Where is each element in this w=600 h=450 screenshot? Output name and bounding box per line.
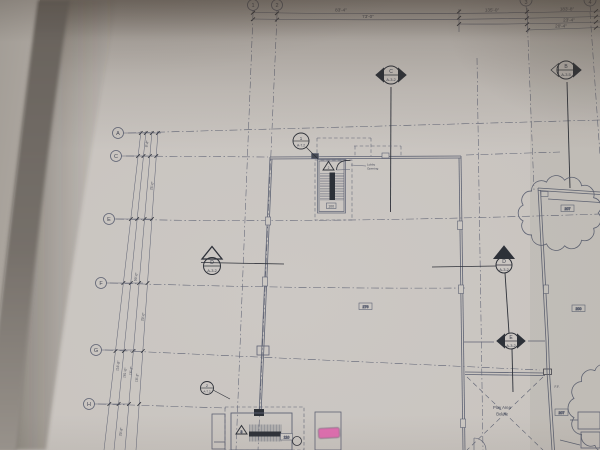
svg-text:D: D — [210, 260, 214, 266]
svg-text:A-3.2: A-3.2 — [499, 267, 509, 272]
svg-text:A-7.2: A-7.2 — [203, 390, 211, 394]
svg-text:D: D — [502, 259, 506, 265]
svg-text:H: H — [87, 402, 91, 408]
svg-text:Opening: Opening — [367, 167, 379, 171]
svg-text:E: E — [107, 217, 111, 223]
svg-text:A-3.2: A-3.2 — [506, 343, 516, 348]
svg-text:2: 2 — [328, 166, 330, 170]
svg-text:G: G — [94, 348, 98, 354]
svg-text:100: 100 — [328, 205, 334, 209]
svg-text:Play Area: Play Area — [493, 405, 512, 410]
svg-text:C: C — [114, 154, 118, 160]
svg-text:276: 276 — [363, 305, 369, 309]
svg-text:A-3.2: A-3.2 — [207, 268, 217, 273]
